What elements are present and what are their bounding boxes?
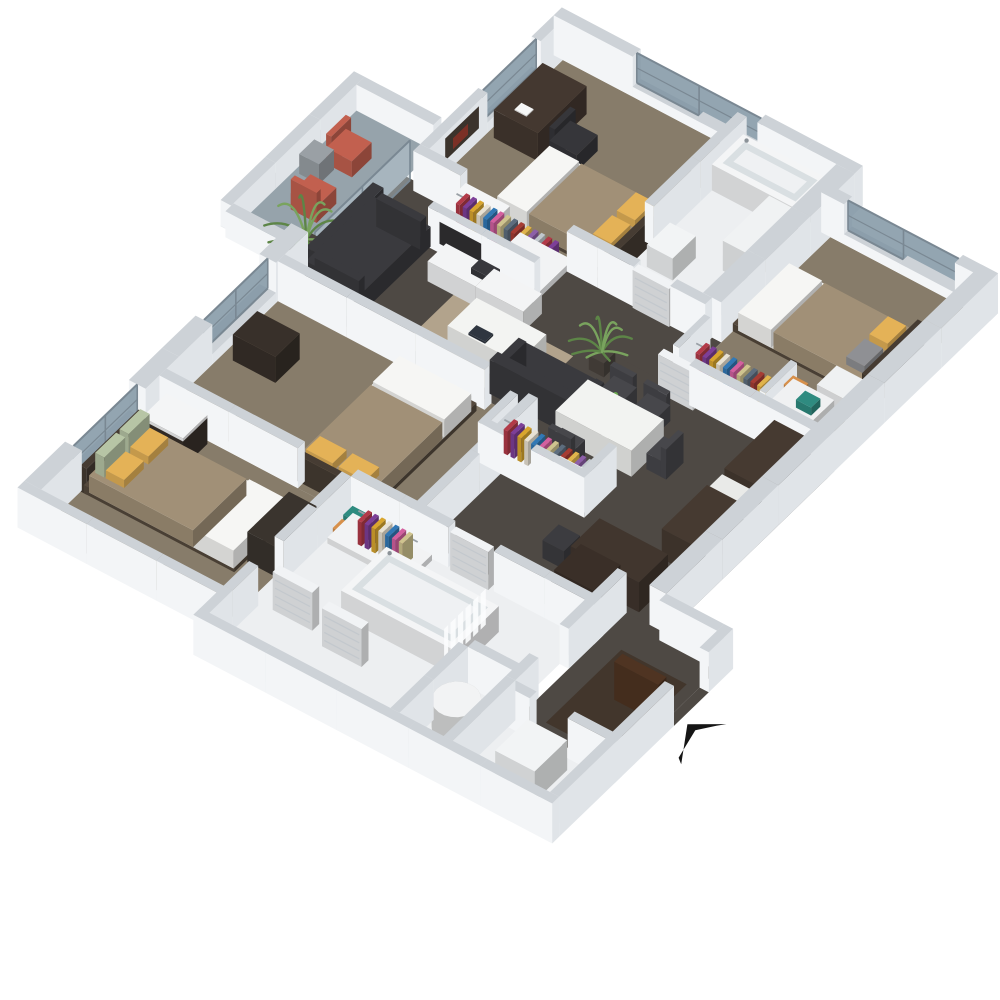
floorplan-3d-render (0, 0, 1000, 1000)
entry-arrow (679, 724, 727, 764)
scene-objects (18, 7, 999, 843)
floorplan-canvas (0, 0, 1000, 1000)
